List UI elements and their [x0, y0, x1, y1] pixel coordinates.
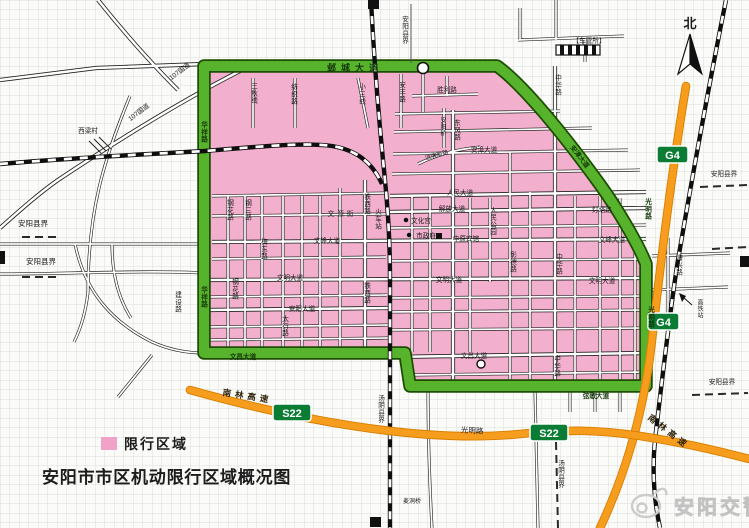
s22-badge-label: S22: [282, 408, 302, 420]
legend: 限行区域: [101, 436, 188, 452]
map-edge-tab-left: [0, 251, 5, 264]
label-xiange-avenue: 弦歌大道: [583, 391, 610, 400]
watermark-text: 安阳交警: [674, 495, 749, 519]
railway-terminal-mark-top: [368, 0, 379, 9]
legend-label: 限行区域: [124, 436, 188, 452]
label-shengli-road: 胜利路: [437, 85, 457, 94]
legend-swatch-restricted: [101, 437, 117, 450]
compass-north-label: 北: [683, 16, 696, 31]
label-zhongyuan-hotel: 中原宾馆: [453, 234, 480, 243]
label-city-hall: 市政府: [416, 231, 436, 240]
g4-badge-label: G4: [665, 150, 681, 162]
label-wenming-avenue: 文明大道: [436, 275, 463, 284]
label-xiliang-village: 西梁村: [78, 126, 98, 135]
label-wenfeng-avenue: 文峰大道: [599, 235, 626, 244]
label-wenfeng-avenue: 文峰大道: [314, 236, 341, 245]
map-title: 安阳市市区机动限行区域概况图: [42, 467, 291, 487]
label-guangming-road-south: 光明路: [461, 424, 484, 435]
label-anyang-county-border: 安阳县界: [709, 377, 736, 386]
label-maidong-bridge: 麦洞桥: [403, 497, 421, 505]
railway-terminal-mark-bottom: [370, 517, 381, 527]
poi-square-zhongyuan-hotel: [436, 233, 442, 239]
g4-badge-label: G4: [656, 317, 672, 329]
label-vehicle-admin-office: 【车管所】: [573, 36, 606, 45]
vehicle-admin-building: [556, 45, 600, 55]
label-yecheng-avenue: 邺城大道: [327, 62, 383, 73]
label-anyang-bridge: 安阳桥: [439, 117, 446, 138]
label-hsr-station: 高铁站: [696, 299, 703, 320]
junction-circle-wenchang: [477, 360, 485, 368]
label-dengta-road: 灯塔路: [592, 205, 612, 214]
poi-dot-culture-palace: [404, 218, 409, 223]
label-anyang-county-border: 安阳县界: [18, 218, 48, 228]
anyang-restriction-map: G4 G4 S22 S22 邺城大道 华祥路 华祥路 文昌大道 弦歌大道 光明路…: [0, 0, 749, 528]
poi-dot-city-hall: [407, 233, 411, 237]
label-anyang-avenue: 安阳大道: [289, 304, 316, 313]
label-renmin-avenue: 人民大道: [447, 188, 474, 197]
label-culture-palace: 文化宫: [411, 216, 431, 225]
map-canvas: G4 G4 S22 S22 邺城大道 华祥路 华祥路 文昌大道 弦歌大道 光明路…: [0, 0, 749, 528]
label-anyang-county-border: 安阳县界: [26, 256, 56, 266]
label-jiefang-avenue: 解放大道: [439, 204, 466, 213]
label-wenming-avenue: 文明大道: [277, 273, 304, 282]
s22-badge-label: S22: [539, 428, 559, 440]
label-wenchang-avenue: 文昌大道: [461, 351, 488, 360]
map-edge-tab-right: [740, 256, 749, 267]
label-wenyuan-street: 文源街: [328, 209, 357, 218]
label-anzhang-avenue: 安漳大道: [471, 145, 498, 154]
label-anyang-county-border: 安阳县界: [711, 169, 738, 178]
label-wenming-avenue: 文明大道: [589, 276, 616, 285]
label-wenchang-avenue-green: 文昌大道: [230, 352, 257, 361]
junction-circle-yecheng: [418, 63, 429, 74]
